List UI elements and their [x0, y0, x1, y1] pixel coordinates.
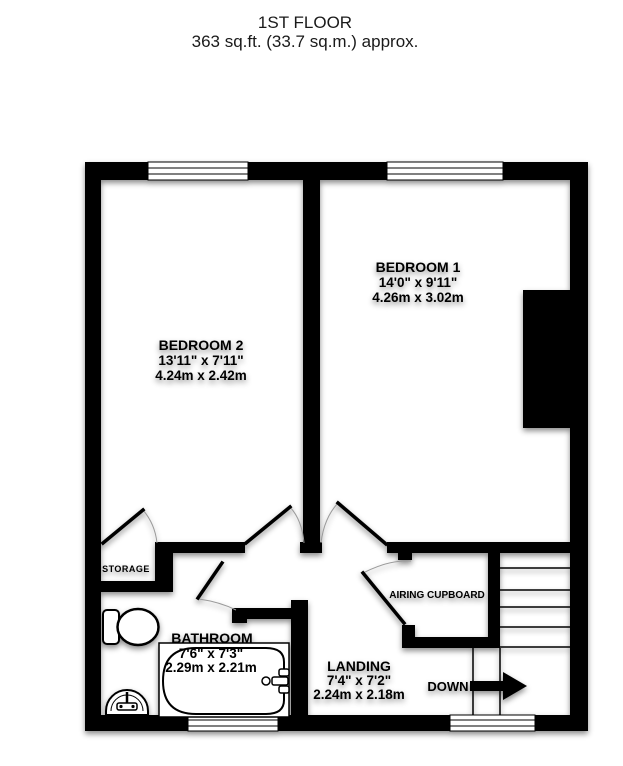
storage-door — [103, 510, 157, 543]
wall-divider-foot — [300, 542, 322, 553]
landing-dims-imperial: 7'4" x 7'2" — [327, 673, 391, 688]
sink — [106, 690, 148, 715]
wall-right — [570, 162, 588, 731]
down-label: DOWN — [427, 679, 468, 694]
wall-bedroom-divider — [303, 180, 320, 542]
bathroom-dims-metric: 2.29m x 2.21m — [165, 660, 257, 675]
toilet — [103, 609, 159, 645]
floor-area: 363 sq.ft. (33.7 sq.m.) approx. — [192, 32, 419, 51]
wall-airing-bottom — [402, 637, 500, 648]
landing-label: LANDING — [327, 658, 391, 674]
window-stairs — [450, 715, 535, 731]
wall-stairs-left — [488, 542, 500, 648]
bathroom-label: BATHROOM — [171, 630, 252, 646]
bathroom-dims-imperial: 7'6" x 7'3" — [179, 646, 243, 661]
window-top-right — [387, 162, 503, 180]
bedroom2-door — [246, 507, 304, 543]
window-top-left — [148, 162, 248, 180]
wall-airing-top-jamb — [398, 542, 412, 560]
bedroom2-label: BEDROOM 2 — [159, 337, 244, 353]
wall-bathroom-right — [291, 600, 308, 731]
floorplan-drawing: BEDROOM 1 14'0" x 9'11" 4.26m x 3.02m BE… — [85, 162, 588, 731]
bedroom1-door — [321, 503, 386, 544]
storage-label: STORAGE — [102, 564, 150, 574]
airing-cupboard-label: AIRING CUPBOARD — [389, 590, 485, 601]
wall-bedroom1-bottom — [387, 542, 570, 553]
bedroom2-dims-imperial: 13'11" x 7'11" — [158, 353, 243, 368]
bathroom-door — [198, 563, 236, 610]
bedroom1-dims-imperial: 14'0" x 9'11" — [379, 275, 458, 290]
wall-left — [85, 162, 101, 731]
chimney-breast — [523, 290, 570, 428]
down-arrow-icon — [470, 672, 527, 700]
wall-airing-bottom-jamb — [402, 625, 415, 648]
floorplan-svg: 1ST FLOOR 363 sq.ft. (33.7 sq.m.) approx… — [0, 0, 623, 766]
bedroom1-dims-metric: 4.26m x 3.02m — [372, 290, 464, 305]
bedroom1-label: BEDROOM 1 — [376, 259, 461, 275]
doors — [103, 503, 411, 623]
floor-title: 1ST FLOOR — [258, 13, 352, 32]
landing-dims-metric: 2.24m x 2.18m — [313, 687, 405, 702]
wall-bathroom-door-jamb — [232, 608, 247, 623]
wall-storage-bottom — [101, 581, 173, 592]
bedroom2-dims-metric: 4.24m x 2.42m — [155, 368, 247, 383]
floorplan-page: 1ST FLOOR 363 sq.ft. (33.7 sq.m.) approx… — [0, 0, 623, 766]
